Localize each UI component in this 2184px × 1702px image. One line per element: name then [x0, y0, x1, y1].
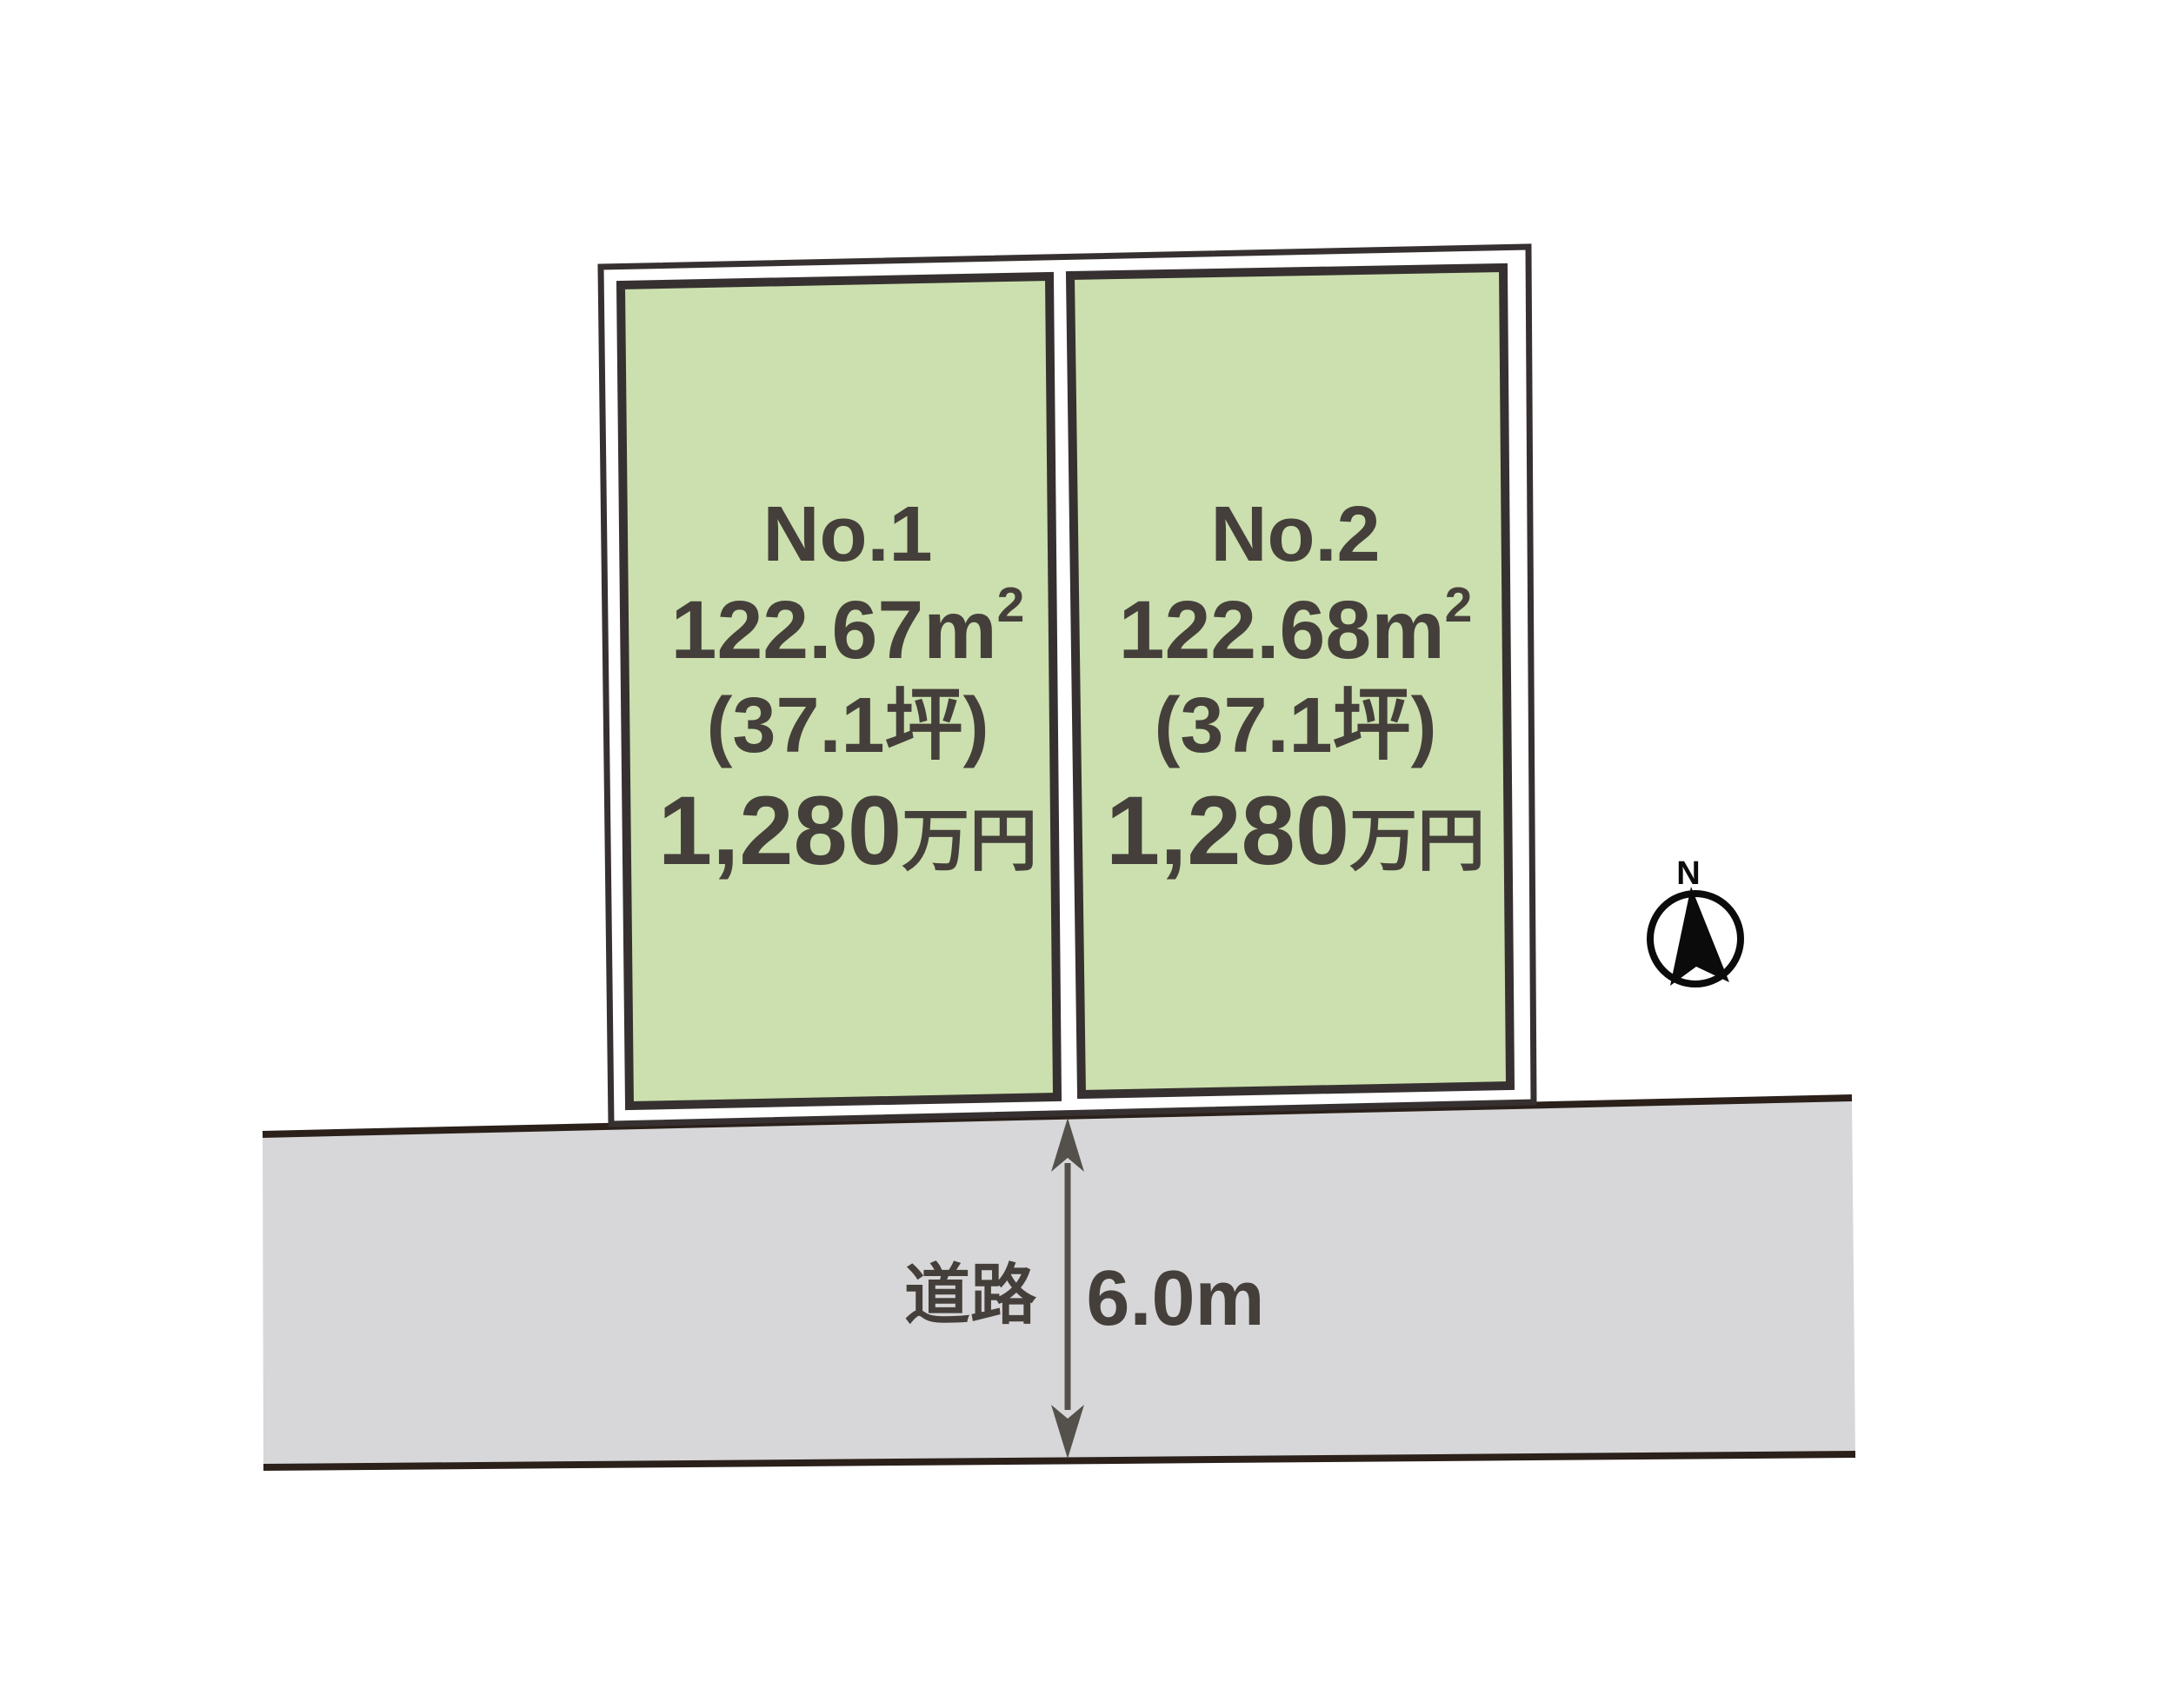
lot-2-area-unit: m	[1371, 584, 1444, 676]
lot-1-area-unit: m	[923, 584, 996, 676]
lot-1-area-exponent: 2	[997, 577, 1025, 633]
lot-1-tsubo-label: (37.1坪)	[706, 682, 989, 769]
lot-2-price-unit: 万円	[1349, 802, 1485, 879]
lot-1-price-value: 1,280	[658, 776, 902, 885]
lot-2-area-value: 122.68	[1119, 584, 1372, 676]
lot-2-price-value: 1,280	[1106, 776, 1349, 885]
road-label: 道路	[904, 1259, 1037, 1333]
road-width-label: 6.0m	[1086, 1255, 1264, 1342]
compass-north-label: N	[1676, 855, 1700, 892]
lot-1-area-label: 122.67m2	[671, 577, 1025, 676]
lot-2-area	[1070, 268, 1510, 1094]
plot-layout-canvas: No.1 122.67m2 (37.1坪) 1,280万円 No.2 122.6…	[0, 0, 2184, 1702]
lot-2-area-label: 122.68m2	[1119, 577, 1473, 676]
lot-2-name: No.2	[1210, 491, 1380, 578]
lot-2-area-exponent: 2	[1445, 577, 1473, 633]
lot-1-name: No.1	[762, 491, 932, 578]
lot-1-price-unit: 万円	[902, 802, 1037, 879]
compass-icon: N	[1650, 855, 1741, 986]
land-plot-diagram: No.1 122.67m2 (37.1坪) 1,280万円 No.2 122.6…	[0, 0, 2184, 1702]
lot-1-area-value: 122.67	[671, 584, 924, 676]
lot-2-tsubo-label: (37.1坪)	[1154, 682, 1436, 769]
